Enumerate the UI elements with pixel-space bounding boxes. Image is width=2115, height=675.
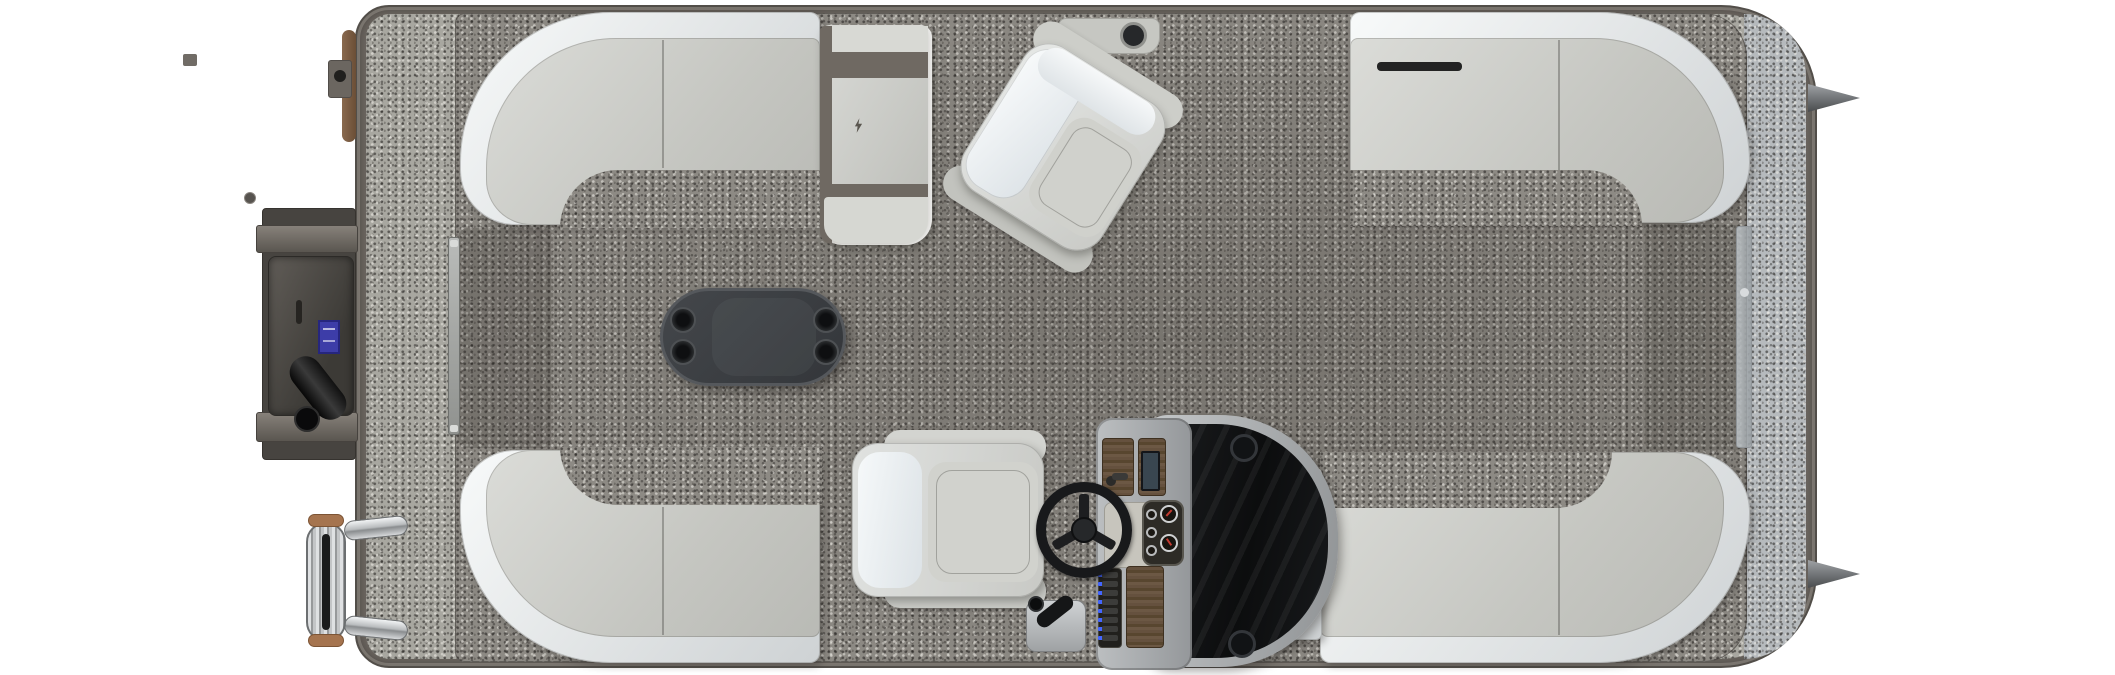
cup-holder <box>1120 22 1147 49</box>
dash-handle <box>1112 473 1128 480</box>
transom-beam <box>256 225 358 253</box>
motor-trim-cap <box>294 406 320 432</box>
cup-holder <box>670 307 696 333</box>
motor-label-mark <box>323 340 335 342</box>
chaise-top-cushion <box>832 26 928 53</box>
cushion-seam <box>662 40 664 168</box>
cushion-seam <box>1558 505 1560 635</box>
bow-boarding-platform <box>1744 14 1806 659</box>
rocker-switch <box>1102 590 1118 596</box>
rocker-switch <box>1102 608 1118 614</box>
under-seat-gap <box>1377 62 1462 71</box>
cleat-hole <box>334 70 346 82</box>
console-corner-speaker <box>1230 434 1258 462</box>
bow-inner-shadow <box>1645 225 1745 450</box>
steering-wheel <box>1036 482 1132 578</box>
throttle-knob <box>1028 596 1044 612</box>
multifunction-display <box>1141 451 1160 491</box>
stern-fitting <box>244 192 256 204</box>
console-corner-speaker <box>1228 630 1256 658</box>
starboard-bow-lounge-floor-cutout <box>1320 452 1612 508</box>
chaise-backrest-panel <box>832 78 928 184</box>
cup-holder <box>670 339 696 365</box>
pontoon-nose-cone <box>1808 84 1860 112</box>
chaise-accent-band-top <box>832 52 928 78</box>
stern-fitting <box>183 54 197 66</box>
ladder-grip <box>308 514 344 527</box>
steering-wheel-hub <box>1071 517 1097 543</box>
cushion-seam <box>662 507 664 635</box>
motor-vent-slot <box>296 300 302 324</box>
gauge-small <box>1146 527 1157 538</box>
cup-holder <box>813 307 839 333</box>
pontoon-floorplan-render <box>0 0 2115 675</box>
rocker-switch <box>1102 617 1118 623</box>
motor-brand-label <box>318 320 340 354</box>
port-bow-lounge-floor-cutout <box>1350 170 1642 226</box>
starboard-stern-lounge-floor-cutout <box>560 447 822 505</box>
chaise-accent-band-bottom <box>832 184 928 197</box>
rocker-switch <box>1102 626 1118 632</box>
ladder-grip <box>308 634 344 647</box>
helm-chair-seat-seam <box>936 470 1030 574</box>
stern-gate-hinge-bottom <box>450 425 458 432</box>
brand-bolt-icon <box>854 118 863 133</box>
stern-gate-hinge-top <box>450 240 458 247</box>
cushion-seam <box>1558 40 1560 170</box>
port-stern-lounge-floor-cutout <box>560 170 822 228</box>
chaise-footrest <box>824 197 928 243</box>
rocker-switch <box>1102 635 1118 641</box>
dash-wood-panel <box>1126 566 1164 648</box>
stern-gate <box>448 237 460 435</box>
gauge-small <box>1146 509 1157 520</box>
cup-holder <box>813 339 839 365</box>
helm-chair-backrest <box>858 452 922 588</box>
pontoon-nose-cone <box>1808 560 1860 588</box>
bow-gate <box>1736 226 1752 448</box>
ladder-center-slot <box>322 534 330 630</box>
gauge-small <box>1146 545 1157 556</box>
rocker-switch <box>1102 581 1118 587</box>
table-center-panel <box>712 298 816 376</box>
stern-gate-shadow <box>458 228 553 448</box>
rocker-switch <box>1102 599 1118 605</box>
motor-label-mark <box>323 328 335 330</box>
bow-gate-latch <box>1740 288 1749 297</box>
